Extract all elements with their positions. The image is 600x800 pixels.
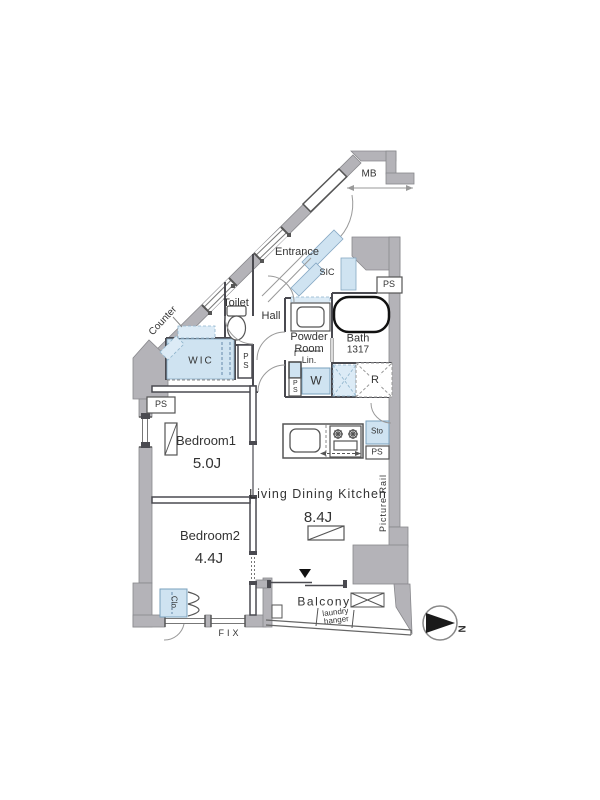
bath-size: 1317 — [347, 345, 370, 356]
picture-rail-label: Picture Rail — [379, 474, 389, 532]
bath-name: Bath — [347, 332, 370, 344]
toilet-icon — [227, 306, 246, 340]
powder-room-line1: Powder — [290, 331, 327, 343]
counter-pointer — [173, 317, 182, 327]
entrance-door — [303, 169, 353, 242]
ps-column-label: PS — [241, 352, 250, 370]
direction-triangle — [299, 569, 311, 578]
washer-label: W — [310, 374, 321, 387]
mb-wall-vert — [386, 151, 396, 174]
sic-label: SIC — [319, 268, 334, 278]
left-wall-mid — [139, 447, 152, 583]
ps-left-label: PS — [155, 400, 167, 410]
entrance-label: Entrance — [275, 246, 319, 258]
sto-label: Sto — [371, 428, 383, 437]
bedroom1-size: 5.0J — [193, 456, 221, 473]
powder-room-label: Powder Room — [290, 331, 327, 355]
hall-label: Hall — [262, 310, 281, 322]
floorplan-drawing — [0, 0, 600, 800]
floorplan-canvas: MB Entrance SIC PS Counter Toilet Hall P… — [0, 0, 600, 800]
north-label: N — [456, 625, 467, 632]
dimension-line — [347, 185, 413, 191]
ldk-door-arc — [258, 365, 285, 392]
bedroom2-size: 4.4J — [195, 551, 223, 568]
ps-bath-label: PS — [383, 280, 395, 290]
balcony-sliding-door — [267, 580, 347, 588]
ldk-size: 8.4J — [304, 510, 332, 527]
mb-wall-bottom — [386, 173, 414, 184]
bottom-wall-post — [205, 615, 211, 627]
vanity-counter-strip — [291, 297, 330, 303]
mb-label: MB — [362, 169, 377, 180]
ps-kitchen-label: PS — [371, 447, 382, 456]
closet-bifold-door — [188, 592, 199, 616]
laundry-hanger-label: laundry hanger — [322, 607, 350, 627]
closet-label: Clo. — [169, 596, 178, 610]
powder-door-arc — [257, 332, 285, 360]
sink-icon — [290, 429, 320, 452]
kitchen-counter — [283, 424, 363, 458]
bottom-right-wall — [353, 545, 408, 584]
bedroom-walls — [152, 345, 256, 615]
fix-label: FIX — [218, 629, 241, 639]
powder-room-line2: Room — [290, 343, 327, 355]
ps-powder-label: PS — [291, 380, 299, 394]
fridge-label: R — [370, 374, 380, 386]
compass-icon — [423, 606, 457, 640]
toilet-label: Toilet — [223, 297, 249, 309]
table-symbol — [308, 526, 344, 540]
counter-strip — [178, 326, 215, 338]
lin-label: Lin. — [302, 356, 317, 366]
balcony-right-wall — [394, 584, 412, 633]
sto-door-arc — [371, 403, 391, 423]
sic-shelf-3 — [341, 258, 356, 290]
right-wall-step — [389, 527, 408, 547]
vanity-icon — [291, 303, 330, 331]
bathtub-icon — [334, 297, 389, 332]
ldk-label: Living Dining Kitchen — [249, 488, 387, 502]
wic-label: WIC — [188, 356, 213, 367]
bath-label: Bath 1317 — [347, 332, 370, 355]
bedroom2-label: Bedroom2 — [180, 529, 240, 543]
bedroom1-label: Bedroom1 — [176, 434, 236, 448]
ps-shaft-box — [289, 362, 301, 378]
bath-door — [331, 338, 333, 362]
